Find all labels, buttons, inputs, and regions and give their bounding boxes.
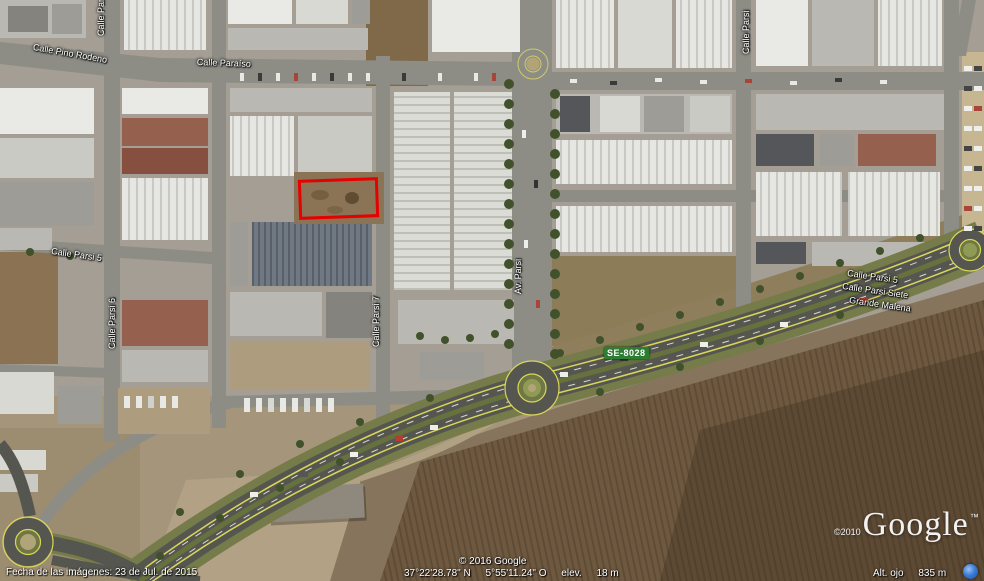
eye-alt-label: Alt. ojo	[873, 568, 904, 579]
logo-copyright-year: ©2010	[834, 527, 861, 537]
lot-texture	[345, 192, 359, 204]
google-watermark: ©2010 Google ™	[834, 508, 979, 542]
elevation-label: elev.	[561, 568, 581, 579]
route-badge-se-8028: SE-8028	[604, 347, 649, 359]
elevation-value: 18 m	[596, 568, 618, 579]
street-label-calle-parsi-7: Calle Parsi 7	[371, 296, 381, 347]
logo-trademark: ™	[970, 512, 979, 522]
eye-alt-value: 835 m	[918, 568, 946, 579]
street-label-calle-parsi-top-right: Calle Parsi	[741, 10, 751, 54]
annotation-group	[294, 172, 384, 224]
eye-altitude-readout: Alt. ojo 835 m	[873, 568, 946, 579]
streaming-status-icon	[963, 564, 978, 579]
street-label-calle-parsi-top-left: Calle Parsi	[96, 0, 106, 36]
lot-texture	[311, 190, 329, 200]
coordinates-readout: 37°22'28.78" N 5°55'11.24" O elev. 18 m	[404, 568, 619, 579]
lot-texture	[327, 206, 343, 214]
latitude-value: 37°22'28.78" N	[404, 568, 471, 579]
google-logo: Google	[863, 508, 969, 542]
imagery-date-text: Fecha de las imágenes: 23 de Jul. de 201…	[6, 567, 197, 578]
satellite-map-canvas[interactable]	[0, 0, 984, 581]
street-label-calle-paraiso: Calle Paraíso	[197, 57, 251, 69]
longitude-value: 5°55'11.24" O	[486, 568, 547, 579]
street-label-av-parsi: Av. Parsi	[513, 259, 523, 294]
google-earth-view: Calle Parsi Calle Pino Rodeno Calle Para…	[0, 0, 984, 581]
map-copyright-text: © 2016 Google	[459, 556, 526, 567]
street-label-calle-parsi-6: Calle Parsi 6	[107, 298, 117, 349]
